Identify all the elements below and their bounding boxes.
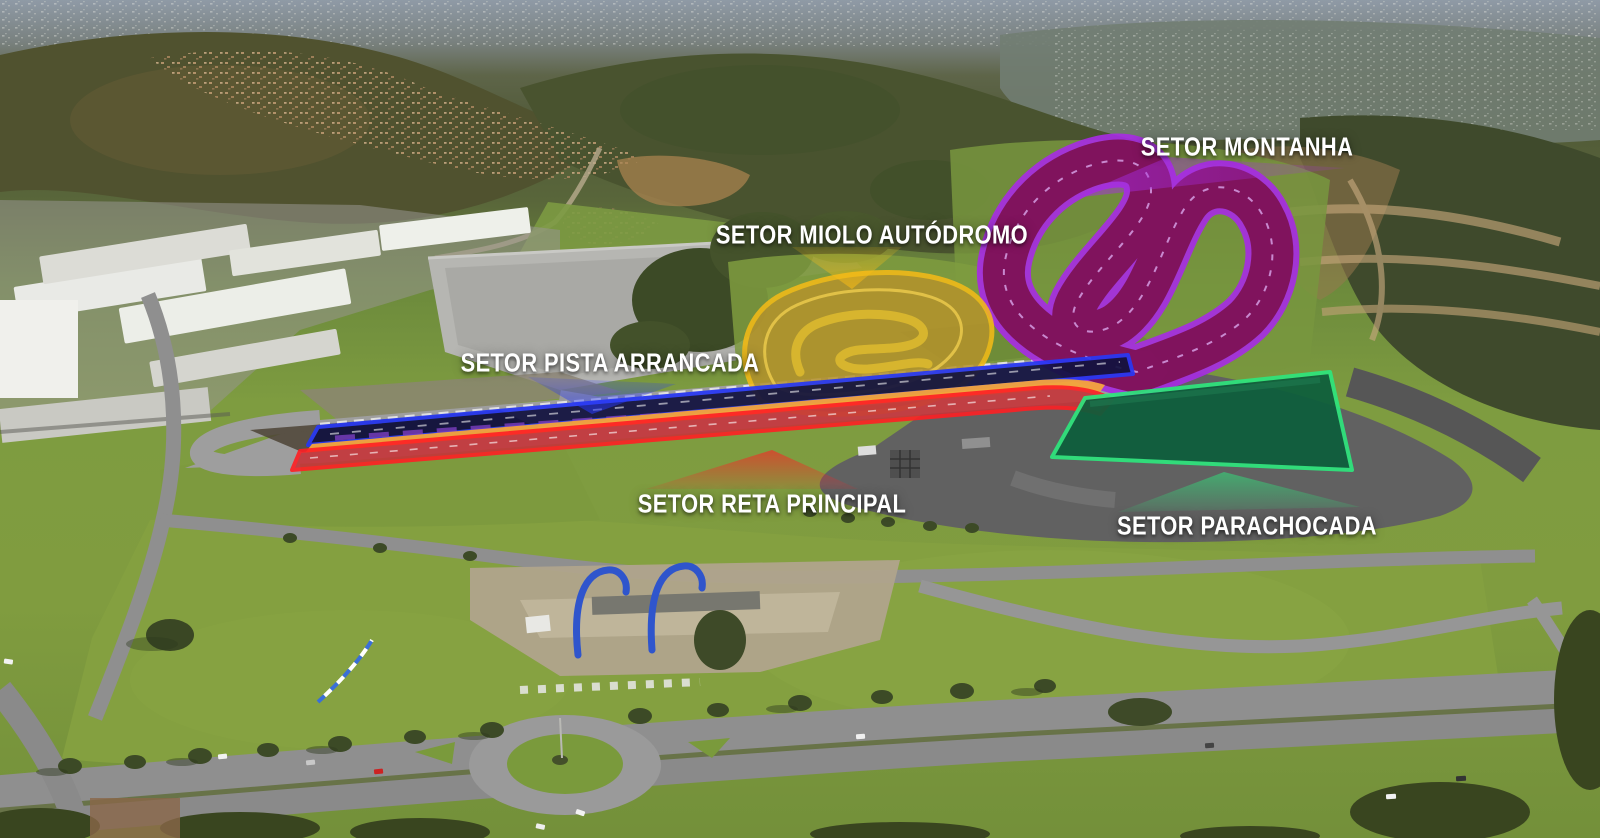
aerial-photo xyxy=(0,0,1600,838)
label-setor-montanha: SETOR MONTANHA xyxy=(1141,132,1354,163)
label-setor-miolo-autodromo: SETOR MIOLO AUTÓDROMO xyxy=(716,220,1028,251)
label-setor-parachocada: SETOR PARACHOCADA xyxy=(1117,511,1377,542)
container-stack xyxy=(890,450,920,478)
truck xyxy=(858,445,877,456)
dirt-patch xyxy=(90,798,180,838)
aerial-circuit-map: SETOR MONTANHA SETOR MIOLO AUTÓDROMO SET… xyxy=(0,0,1600,838)
label-setor-pista-arrancada: SETOR PISTA ARRANCADA xyxy=(461,348,760,379)
gate-booth xyxy=(525,615,551,633)
label-setor-reta-principal: SETOR RETA PRINCIPAL xyxy=(638,489,906,520)
